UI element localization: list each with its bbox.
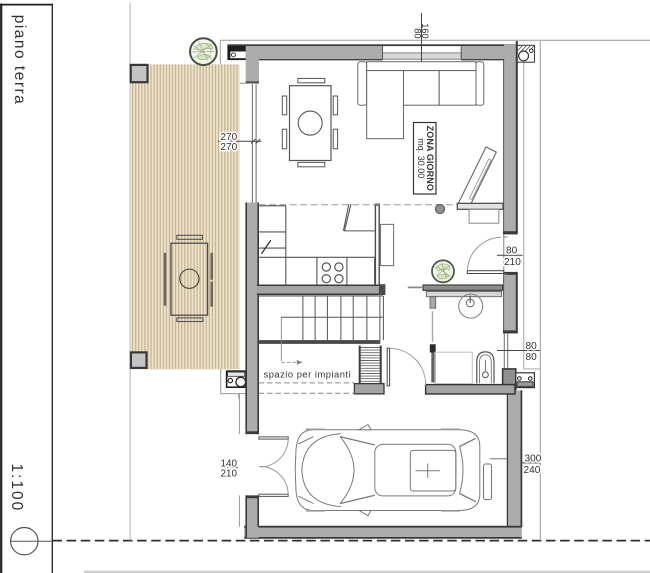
svg-text:270: 270 bbox=[220, 142, 237, 153]
svg-text:piano terra: piano terra bbox=[11, 15, 28, 106]
svg-text:80: 80 bbox=[526, 341, 538, 352]
svg-text:80: 80 bbox=[526, 352, 538, 363]
svg-text:210: 210 bbox=[221, 468, 238, 479]
svg-text:300: 300 bbox=[525, 453, 542, 464]
svg-text:210: 210 bbox=[504, 257, 521, 268]
svg-text:160: 160 bbox=[420, 23, 430, 38]
svg-text:mq. 30.00: mq. 30.00 bbox=[416, 138, 426, 178]
svg-text:80: 80 bbox=[506, 246, 518, 257]
svg-text:spazio per impianti: spazio per impianti bbox=[264, 369, 352, 380]
svg-text:1:100: 1:100 bbox=[8, 464, 25, 513]
svg-text:240: 240 bbox=[524, 465, 541, 476]
